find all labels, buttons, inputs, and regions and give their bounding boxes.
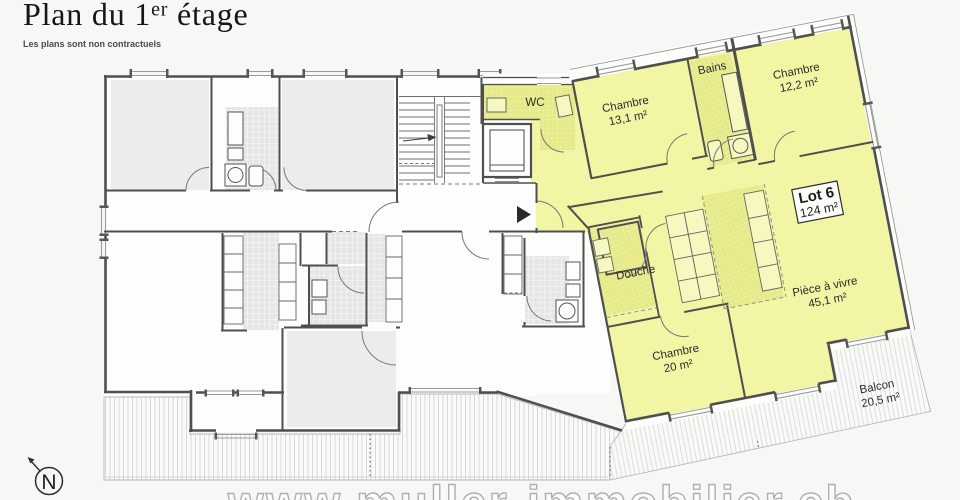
svg-text:N: N: [41, 471, 56, 494]
svg-text:www.muller-immobilier.ch: www.muller-immobilier.ch: [227, 476, 856, 500]
svg-text:Plan du 1er étage: Plan du 1er étage: [23, 0, 249, 32]
svg-text:WC: WC: [525, 97, 544, 109]
svg-text:Les plans sont non contractuel: Les plans sont non contractuels: [23, 39, 161, 49]
